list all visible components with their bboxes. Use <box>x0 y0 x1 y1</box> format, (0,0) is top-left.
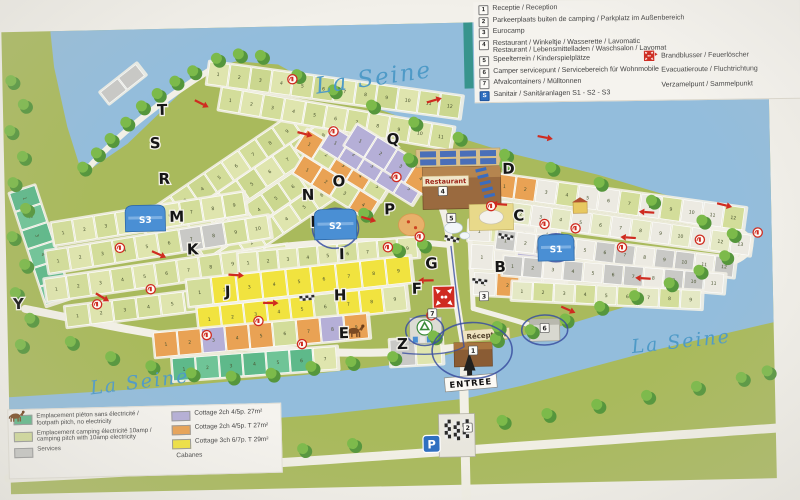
svg-text:1: 1 <box>471 348 475 355</box>
parking-letter: P <box>427 437 436 451</box>
assembly-point-icon <box>433 286 455 308</box>
map-marker-1: 1 <box>469 346 478 355</box>
parked-cars <box>444 420 451 439</box>
pitch-legend-label: Emplacement camping électricité 10amp /c… <box>37 427 152 443</box>
pitch-number: 10 <box>677 233 684 240</box>
legend-symbol-fire-extinguisher: Brandblusser / Feuerlöscher <box>643 48 795 62</box>
cottage-legend-item: Cottage 2ch 4/5p. T 27m² <box>172 422 269 435</box>
zone-letter-H: H <box>334 286 347 304</box>
fire-extinguisher-icon <box>695 235 704 244</box>
zone-letter-T: T <box>157 101 168 119</box>
legend-number-box: 3 <box>479 28 489 38</box>
fire-extinguisher-icon <box>392 172 401 181</box>
zone-letter-R: R <box>158 170 170 188</box>
zone-letter-P: P <box>384 200 395 218</box>
fire-extinguisher-icon <box>297 339 306 348</box>
evacuation-arrow-icon <box>643 64 656 76</box>
cottage-legend-item: Cottage 2ch 4/5p. 27m² <box>171 408 268 421</box>
pitch-number: 8 <box>331 327 335 333</box>
pitch-number: 9 <box>689 297 692 303</box>
fire-extinguisher-icon <box>571 224 580 233</box>
legend-symbol-label: Evacuatieroute / Fluchtrichtung <box>661 65 758 73</box>
zone-letter-E: E <box>339 324 350 342</box>
legend-map-symbols: 1Receptie / Reception2Parkeerplaats buit… <box>473 0 800 103</box>
legend-symbol-label: Brandblusser / Feuerlöscher <box>661 51 749 59</box>
map-marker-4: 4 <box>438 186 447 195</box>
pitch-legend-item: Emplacement camping électricité 10amp /c… <box>14 427 166 444</box>
restaurant-label: Restaurant <box>425 177 466 186</box>
legend-number-box: 5 <box>479 56 489 66</box>
legend-pitch-column: Emplacement piéton sans électricité /foo… <box>13 410 166 474</box>
legend-safety-symbols: Brandblusser / FeuerlöscherEvacuatierout… <box>643 48 796 94</box>
zone-letter-Y: Y <box>12 295 25 313</box>
paddling-pool-small <box>460 232 470 239</box>
pitch-number: 3 <box>229 363 232 369</box>
sanitair-icon: S <box>480 91 490 101</box>
zone-letter-K: K <box>187 240 200 258</box>
svg-text:7: 7 <box>430 311 434 318</box>
sanitair-label: S1 <box>550 245 563 255</box>
color-swatch <box>14 448 33 458</box>
pitch-number: 5 <box>326 253 330 259</box>
pitch-number: 4 <box>236 335 240 341</box>
cabanes-legend-label: Cabanes <box>176 452 202 460</box>
fire-extinguisher-icon <box>617 243 626 252</box>
map-edge-strip <box>463 22 473 88</box>
color-swatch <box>172 439 191 449</box>
pitch-number: 6 <box>283 331 287 337</box>
pitch-number: 7 <box>323 356 326 362</box>
sanitair-building-S1: S1 <box>538 234 575 261</box>
pitch-number: 4 <box>306 255 310 261</box>
cottage-legend-label: Cottage 2ch 4/5p. T 27m² <box>195 422 269 431</box>
zone-letter-C: C <box>513 206 524 224</box>
svg-text:5: 5 <box>449 215 453 222</box>
pitch-number: 4 <box>571 269 574 275</box>
zone-letter-S: S <box>150 134 161 152</box>
pitch-legend-label: Services <box>37 446 61 453</box>
pitch-number: 7 <box>631 274 634 280</box>
legend-item-label: Speelterrein / Kinderspielplätze <box>493 55 590 64</box>
svg-text:6: 6 <box>542 325 546 332</box>
pitch-number: 13 <box>737 241 744 248</box>
cottage-legend-item: Cottage 3ch 6/7p. T 29m² <box>172 436 269 449</box>
pitch-number: 10 <box>688 209 695 216</box>
pitch-number: 6 <box>346 251 350 257</box>
zone-letter-Z: Z <box>397 335 408 353</box>
pitch-number: 11 <box>437 134 444 141</box>
legend-item-label: Restaurant / Winkeltje / Wasserette / La… <box>493 37 666 55</box>
color-swatch <box>171 411 190 421</box>
campsite-map-photo: 1234561234567891012345678912345678912345… <box>0 0 800 500</box>
pitch-number: 4 <box>584 292 587 298</box>
pitch-number: 3 <box>212 337 216 343</box>
zone-letter-G: G <box>425 254 438 272</box>
fire-extinguisher-icon <box>115 243 124 252</box>
legend-item-label: Parkeerplaats buiten de camping / Parkpl… <box>493 14 685 24</box>
fire-extinguisher-icon <box>415 232 424 241</box>
parked-cars <box>453 421 460 440</box>
legend-number-box: 6 <box>479 68 489 78</box>
fire-extinguisher-icon <box>329 127 338 136</box>
sanitair-building-S3: S3 <box>125 205 166 232</box>
legend-item-label: Receptie / Reception <box>492 4 557 12</box>
pitch-number: 2 <box>506 283 509 289</box>
cabanes-legend-item: Cabanes <box>172 450 269 459</box>
pitch-number: 10 <box>255 226 262 233</box>
legend-item-label: Camper servicepunt / Servicebereich für … <box>493 65 659 75</box>
zone-letter-Q: Q <box>386 130 399 148</box>
legend-item-label: Sanitair / Sanitäranlagen S1 - S2 - S3 <box>494 89 611 98</box>
cottage-legend-label: Cottage 2ch 4/5p. 27m² <box>194 408 262 417</box>
pitch-number: 5 <box>591 271 594 277</box>
pitch-number: 5 <box>605 293 608 299</box>
sanitair-building-S2: S2 <box>314 209 357 240</box>
legend-symbol-label: Verzamelpunt / Sammelpunkt <box>661 80 753 88</box>
zone-letter-M: M <box>169 208 184 226</box>
zone-letter-D: D <box>502 160 515 178</box>
pitch-number: 12 <box>717 239 724 246</box>
pitch-number: 2 <box>531 265 534 271</box>
pitch-number: 1 <box>164 342 168 348</box>
svg-text:2: 2 <box>466 425 470 432</box>
pitch-number: 12 <box>446 103 453 110</box>
pitch-number: 1 <box>246 260 250 266</box>
fire-extinguisher-icon <box>486 201 495 210</box>
pitch-number: 2 <box>541 290 544 296</box>
fire-extinguisher-icon <box>288 75 297 84</box>
color-swatch <box>14 431 33 441</box>
legend-pitch-types: Emplacement piéton sans électricité /foo… <box>7 403 283 480</box>
legend-number-box: 2 <box>479 17 489 27</box>
zone-letter-I: I <box>339 245 345 263</box>
fire-extinguisher-icon <box>92 300 101 309</box>
pitch-number: 2 <box>206 365 209 371</box>
pitch-number: 7 <box>366 249 370 255</box>
map-marker-5: 5 <box>447 213 456 222</box>
zone-letter-F: F <box>412 280 423 298</box>
pitch-number: 10 <box>690 279 696 285</box>
sanitair-label: S3 <box>139 216 152 226</box>
legend-number-box: 4 <box>479 40 489 50</box>
pitch-number: 12 <box>730 215 737 222</box>
pitch-number: 3 <box>551 267 554 273</box>
pitch-number: 11 <box>710 281 716 287</box>
pitch-number: 8 <box>652 276 655 282</box>
cottage-legend-label: Cottage 3ch 6/7p. T 29m² <box>195 436 269 445</box>
pitch-number: 6 <box>300 358 303 364</box>
pitch-number: 1 <box>480 255 483 261</box>
map-marker-7: 7 <box>428 309 437 318</box>
fire-extinguisher-icon <box>540 219 549 228</box>
sanitair-label: S2 <box>329 222 342 232</box>
fire-extinguisher-icon <box>753 228 762 237</box>
zone-letter-N: N <box>302 186 315 204</box>
pitch-number: 6 <box>626 294 629 300</box>
legend-number-box: 7 <box>479 79 489 89</box>
zone-letter-J: J <box>224 283 231 301</box>
legend-cottage-column: Cottage 2ch 4/5p. 27m²Cottage 2ch 4/5p. … <box>171 408 269 470</box>
pitch-number: 11 <box>709 212 716 219</box>
terrace-tent <box>479 210 503 224</box>
pitch-number: 8 <box>668 296 671 302</box>
paddling-pool <box>444 222 462 233</box>
pitch-number: 5 <box>259 333 263 339</box>
pitch-number: 6 <box>611 272 614 278</box>
fire-extinguisher-icon <box>254 316 263 325</box>
fire-extinguisher-icon <box>202 330 211 339</box>
legend-symbol-assembly-point: Verzamelpunt / Sammelpunkt <box>643 77 795 91</box>
pitch-legend-label: Emplacement piéton sans électricité /foo… <box>36 411 139 427</box>
color-swatch <box>172 425 191 435</box>
pitch-number: 7 <box>647 295 650 301</box>
pitch-number: 10 <box>404 98 411 105</box>
pitch-legend-item: Services <box>14 444 166 459</box>
pitch-number: 12 <box>721 264 728 271</box>
pitch-number: 2 <box>266 258 270 264</box>
map-marker-3: 3 <box>479 292 488 301</box>
pitch-number: 1 <box>520 289 523 295</box>
assembly-point-icon <box>643 79 656 91</box>
pitch-number: 4 <box>253 361 256 367</box>
pitch-number: 7 <box>307 329 311 335</box>
legend-item-label: Afvalcontainers / Mülltonnen <box>493 78 581 87</box>
pitch-number: 10 <box>681 259 688 266</box>
legend-symbol-evacuation-arrow: Evacuatieroute / Fluchtrichtung <box>643 62 795 76</box>
legend-number-box: 1 <box>478 5 488 15</box>
pitch-legend-item: Emplacement piéton sans électricité /foo… <box>13 410 165 427</box>
pitch-number: 1 <box>511 264 514 270</box>
svg-text:3: 3 <box>482 294 486 301</box>
pitch-number: 2 <box>188 340 192 346</box>
pitch-number: 3 <box>563 291 566 297</box>
pitch-number: 5 <box>276 360 279 366</box>
fire-extinguisher-icon <box>383 243 392 252</box>
zone-letter-O: O <box>332 172 345 190</box>
map-marker-2: 2 <box>463 423 472 432</box>
pitch-number: 3 <box>286 257 290 263</box>
pitch-number: 9 <box>406 246 410 252</box>
legend-item-label: Eurocamp <box>493 28 525 36</box>
map-marker-6: 6 <box>540 323 549 332</box>
parking-sign: P <box>423 435 440 452</box>
fire-extinguisher-icon <box>146 285 155 294</box>
zone-letter-B: B <box>494 258 506 276</box>
